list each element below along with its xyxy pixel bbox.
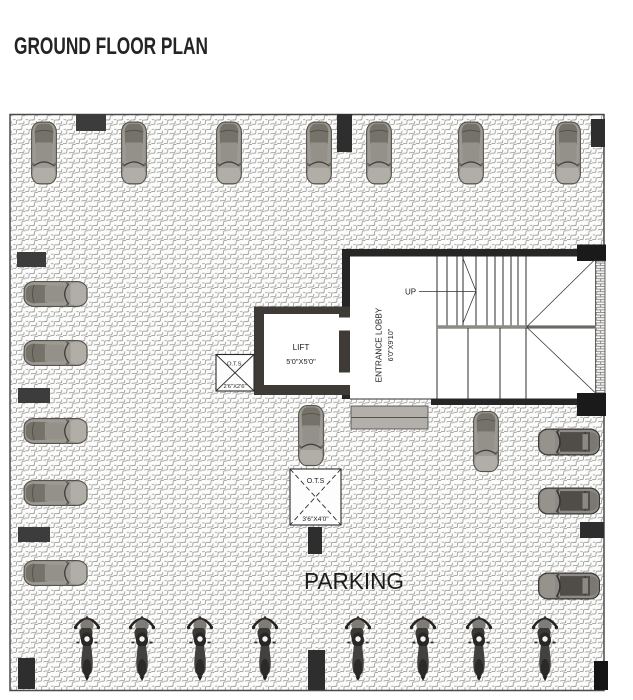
svg-text:3'6"X4'0": 3'6"X4'0" bbox=[302, 516, 329, 523]
svg-text:O.T.S.: O.T.S. bbox=[227, 362, 243, 368]
svg-text:5'0"X5'0": 5'0"X5'0" bbox=[286, 357, 316, 366]
svg-text:O.T.S: O.T.S bbox=[307, 478, 325, 485]
svg-text:6'0"X9'10": 6'0"X9'10" bbox=[386, 328, 395, 361]
svg-text:UP: UP bbox=[405, 288, 416, 297]
svg-text:GROUND FLOOR PLAN: GROUND FLOOR PLAN bbox=[14, 33, 208, 60]
svg-text:ENTRANCE LOBBY: ENTRANCE LOBBY bbox=[375, 307, 384, 382]
svg-text:2'6"X2'6": 2'6"X2'6" bbox=[223, 384, 246, 390]
svg-text:LIFT: LIFT bbox=[293, 343, 310, 352]
svg-text:PARKING: PARKING bbox=[304, 568, 404, 594]
